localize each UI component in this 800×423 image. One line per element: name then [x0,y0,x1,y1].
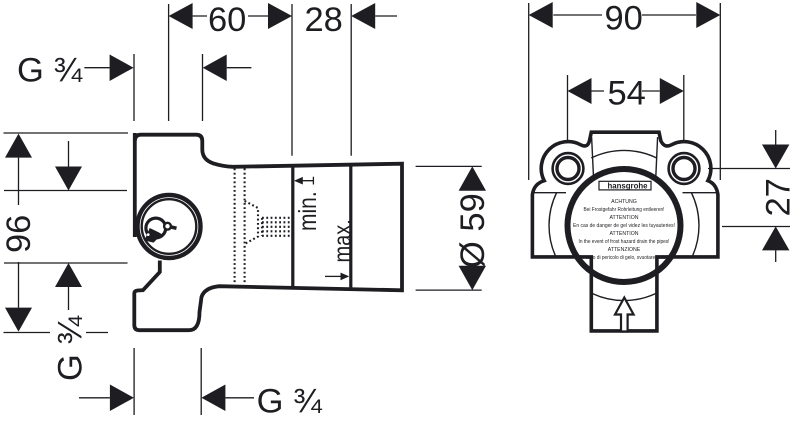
svg-text:60: 60 [208,1,246,39]
svg-text:max.: max. [329,219,356,262]
svg-text:G ¾: G ¾ [17,52,83,90]
svg-text:ATTENTION: ATTENTION [609,231,638,237]
svg-text:In caso di pericolo di gelo, s: In caso di pericolo di gelo, svuotare i … [580,255,668,261]
svg-text:ACHTUNG: ACHTUNG [611,199,637,205]
svg-text:G ¾: G ¾ [52,315,90,381]
svg-text:90: 90 [605,0,643,38]
svg-text:ATTENTION: ATTENTION [609,215,638,221]
svg-text:28: 28 [305,1,343,39]
svg-text:96: 96 [0,215,38,253]
svg-text:G ¾: G ¾ [257,383,323,421]
svg-text:54: 54 [608,75,646,113]
svg-text:hansgrohe: hansgrohe [608,182,649,191]
svg-text:Bei Frostgefahr Rohrleitung en: Bei Frostgefahr Rohrleitung entleeren! [584,207,665,213]
svg-text:min.: min. [293,191,321,231]
svg-text:Ø 59: Ø 59 [454,193,492,268]
svg-text:27: 27 [760,178,798,216]
svg-text:ATTENZIONE: ATTENZIONE [608,247,641,253]
svg-text:En cas de danger de gel videz: En cas de danger de gel videz les tuyaut… [573,223,675,229]
svg-text:In the event of frost hazard d: In the event of frost hazard drain the p… [579,239,670,245]
